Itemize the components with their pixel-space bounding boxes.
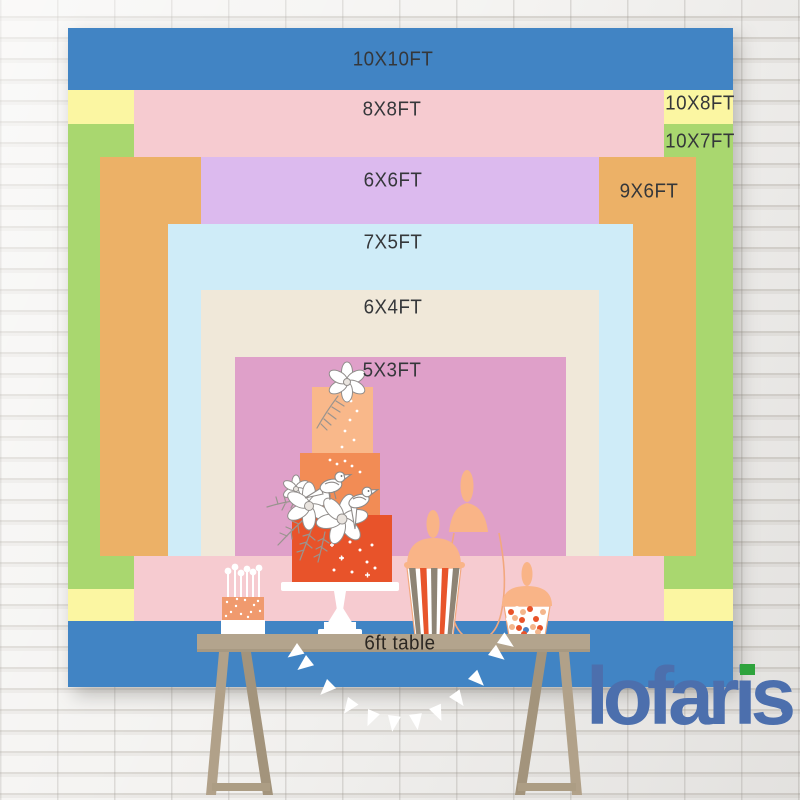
size-label-10x10ft: 10X10FT xyxy=(353,49,434,72)
cake-stand xyxy=(281,582,399,636)
candy-jar xyxy=(502,562,552,637)
cake-pops-stand xyxy=(221,564,265,636)
brand-logo-text: lofaris xyxy=(586,656,790,738)
brand-logo: lofaris xyxy=(586,656,790,738)
table-size-label: 6ft table xyxy=(364,633,435,656)
size-label-10x8ft: 10X8FT xyxy=(665,93,735,116)
size-label-9x6ft: 9X6FT xyxy=(620,181,679,204)
size-label-6x4ft: 6X4FT xyxy=(364,297,423,320)
size-label-8x8ft: 8X8FT xyxy=(363,99,422,122)
brand-logo-flag-icon xyxy=(740,664,755,675)
product-photo-backdrop-size-chart: 10X10FT 8X8FT 10X8FT 10X7FT 6X6FT 9X6FT … xyxy=(0,0,800,800)
size-label-5x3ft: 5X3FT xyxy=(363,360,422,383)
size-label-6x6ft: 6X6FT xyxy=(364,170,423,193)
size-label-10x7ft: 10X7FT xyxy=(665,131,735,154)
three-tier-cake xyxy=(267,362,399,636)
brand-logo-registered-dot xyxy=(781,706,789,714)
size-label-7x5ft: 7X5FT xyxy=(364,232,423,255)
